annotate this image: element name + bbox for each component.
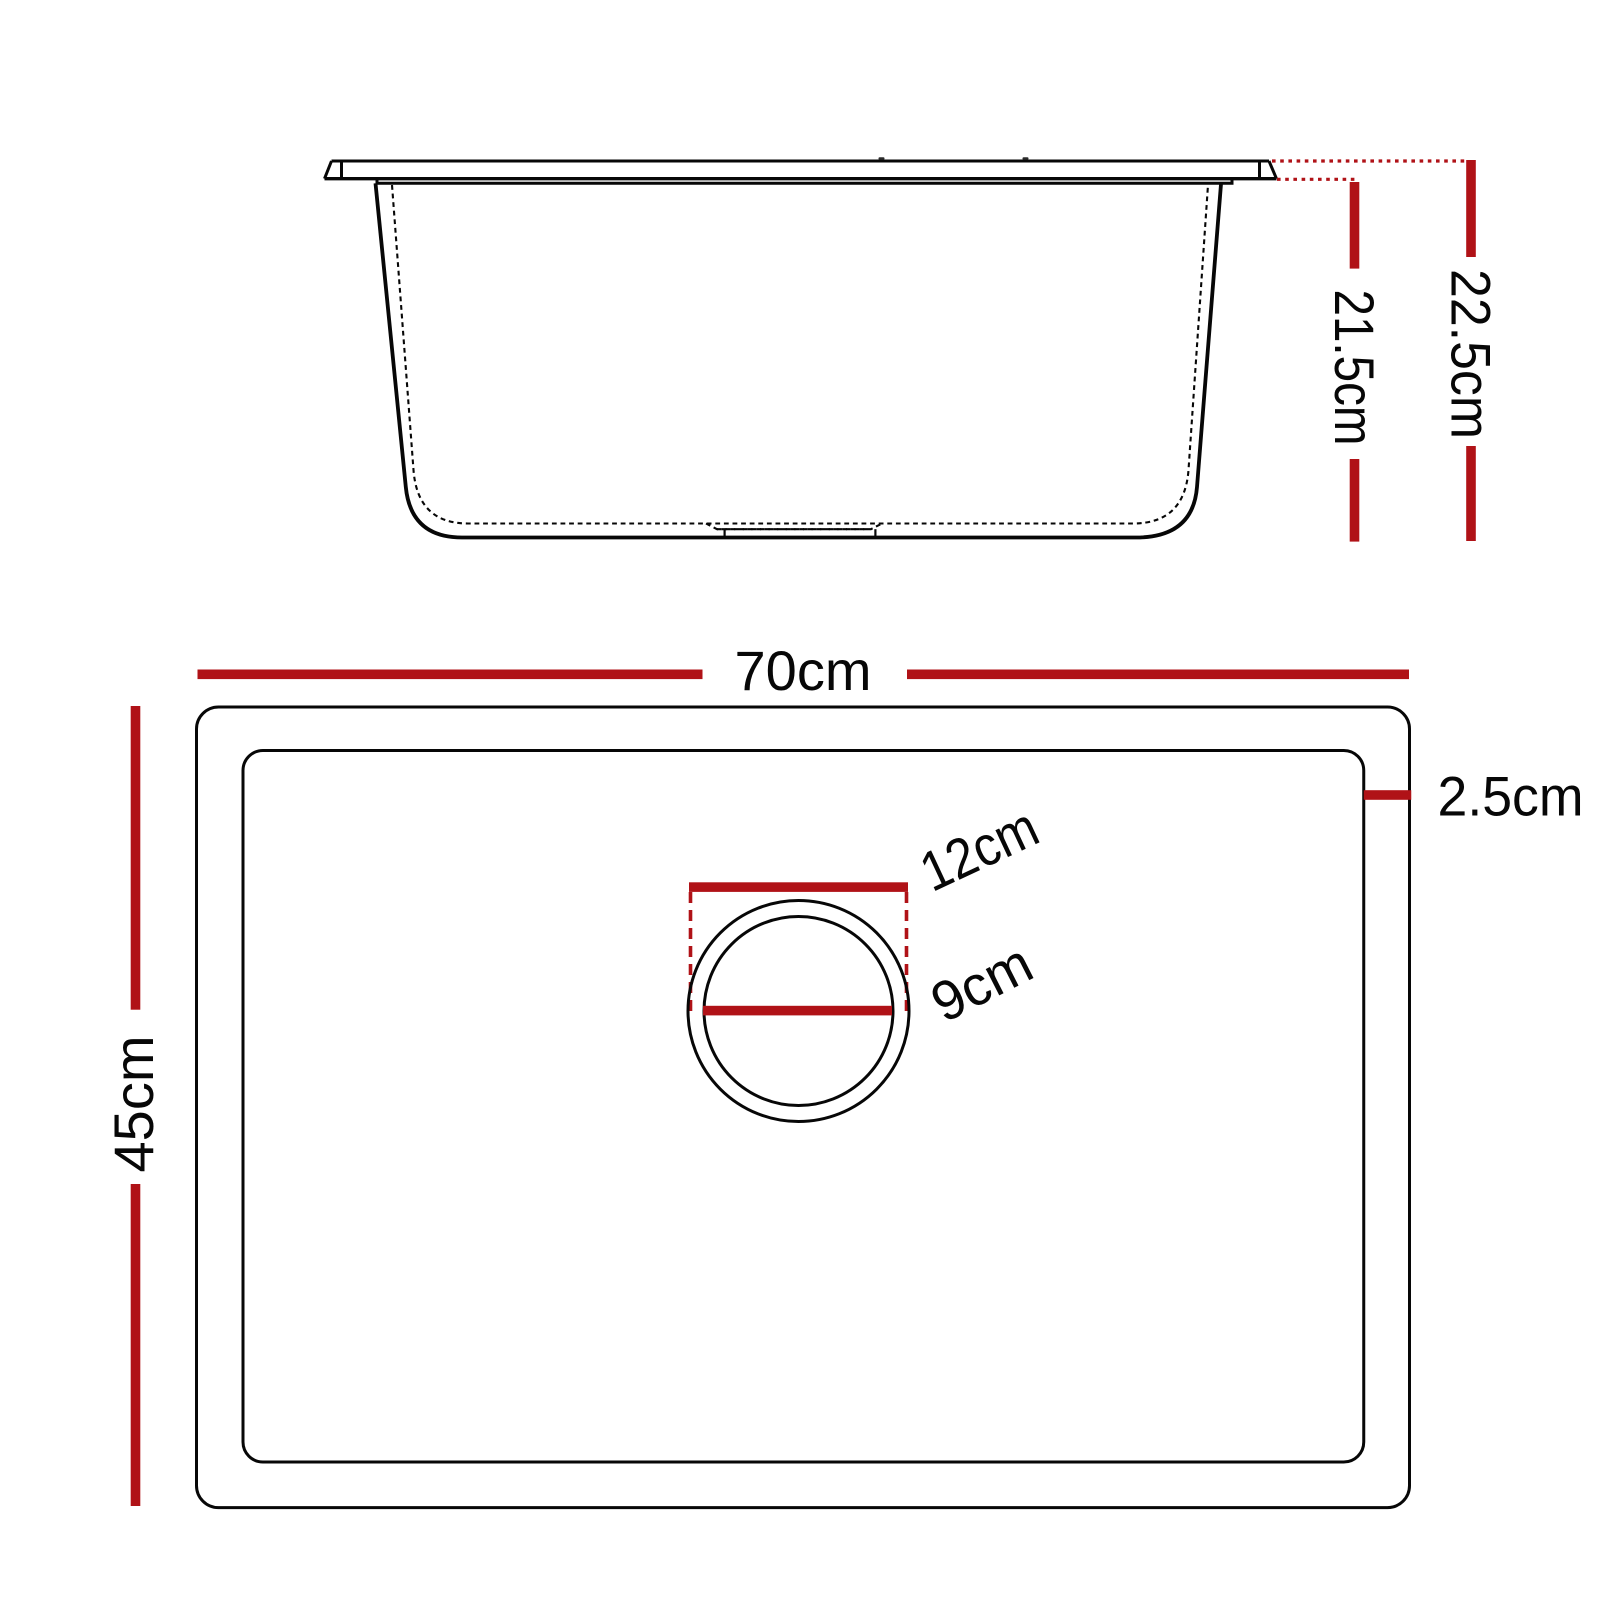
svg-text:70cm: 70cm [735,639,872,702]
svg-text:21.5cm: 21.5cm [1323,290,1386,446]
svg-text:9cm: 9cm [921,931,1042,1034]
svg-text:45cm: 45cm [102,1036,165,1173]
svg-text:2.5cm: 2.5cm [1438,765,1584,828]
svg-text:12cm: 12cm [910,795,1047,904]
svg-text:22.5cm: 22.5cm [1440,269,1503,439]
